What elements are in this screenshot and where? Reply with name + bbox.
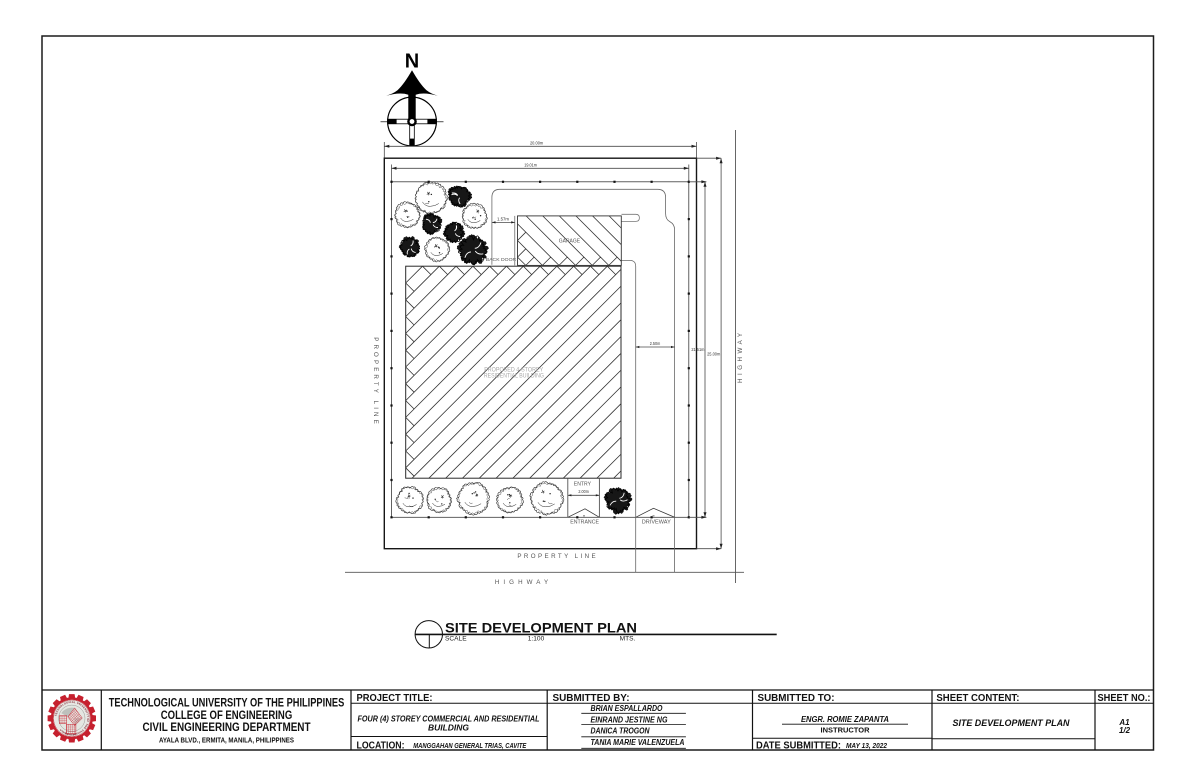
svg-text:TANIA MARIE VALENZUELA: TANIA MARIE VALENZUELA [591, 738, 685, 747]
svg-text:21.51m: 21.51m [691, 347, 704, 353]
svg-text:ENTRY: ENTRY [574, 482, 592, 488]
svg-text:BACK DOOR: BACK DOOR [486, 257, 517, 263]
svg-text:CIVIL ENGINEERING DEPARTMENT: CIVIL ENGINEERING DEPARTMENT [143, 722, 311, 734]
svg-text:INSTRUCTOR: INSTRUCTOR [821, 726, 871, 735]
svg-text:1/2: 1/2 [1119, 726, 1131, 735]
svg-text:SITE DEVELOPMENT PLAN: SITE DEVELOPMENT PLAN [953, 718, 1071, 729]
svg-text:ENTRANCE: ENTRANCE [570, 520, 599, 526]
svg-text:AYALA BLVD., ERMITA, MANILA, P: AYALA BLVD., ERMITA, MANILA, PHILIPPINES [159, 738, 294, 745]
svg-text:19.01m: 19.01m [524, 162, 537, 168]
svg-text:PROPERTY LINE: PROPERTY LINE [517, 553, 595, 560]
svg-text:GARAGE: GARAGE [559, 238, 581, 244]
svg-text:PROPERTY LINE: PROPERTY LINE [372, 337, 379, 424]
svg-text:EINRAND JESTINE NG: EINRAND JESTINE NG [591, 715, 668, 724]
svg-text:BRIAN ESPALLARDO: BRIAN ESPALLARDO [591, 704, 664, 713]
svg-text:1.57m: 1.57m [497, 216, 509, 222]
svg-text:SCALE: SCALE [445, 636, 467, 643]
svg-text:MAY 13, 2022: MAY 13, 2022 [846, 743, 887, 750]
svg-text:2.50m: 2.50m [650, 341, 661, 347]
svg-text:ENGR. ROMIE ZAPANTA: ENGR. ROMIE ZAPANTA [801, 715, 889, 724]
svg-text:SHEET NO.:: SHEET NO.: [1098, 693, 1151, 704]
svg-text:MANGGAHAN GENERAL TRIAS, CAVIT: MANGGAHAN GENERAL TRIAS, CAVITE [413, 743, 526, 750]
svg-text:BUILDING: BUILDING [428, 723, 469, 733]
svg-text:HIGHWAY: HIGHWAY [495, 579, 548, 586]
svg-text:TECHNOLOGICAL UNIVERSITY OF TH: TECHNOLOGICAL UNIVERSITY OF THE PHILIPPI… [109, 698, 345, 710]
svg-text:SUBMITTED TO:: SUBMITTED TO: [758, 693, 835, 704]
svg-text:MTS.: MTS. [620, 636, 636, 643]
svg-text:LOCATION:: LOCATION: [357, 741, 405, 752]
svg-text:2.00m: 2.00m [578, 489, 589, 495]
svg-text:20.00m: 20.00m [530, 141, 543, 147]
svg-text:SUBMITTED BY:: SUBMITTED BY: [553, 693, 630, 704]
svg-text:DATE SUBMITTED:: DATE SUBMITTED: [756, 741, 841, 752]
svg-text:PROJECT TITLE:: PROJECT TITLE: [357, 693, 433, 704]
svg-text:SHEET CONTENT:: SHEET CONTENT: [936, 693, 1019, 704]
svg-text:DRIVEWAY: DRIVEWAY [642, 520, 671, 526]
svg-text:N: N [405, 51, 419, 73]
svg-text:1:100: 1:100 [528, 636, 545, 643]
svg-text:SITE DEVELOPMENT PLAN: SITE DEVELOPMENT PLAN [445, 619, 637, 635]
svg-text:COLLEGE OF ENGINEERING: COLLEGE OF ENGINEERING [161, 710, 293, 722]
svg-text:25.00m: 25.00m [707, 351, 720, 357]
svg-text:DANICA TROGON: DANICA TROGON [591, 726, 650, 735]
svg-text:RESIDENTIAL BUILDING: RESIDENTIAL BUILDING [484, 373, 544, 380]
svg-text:HIGHWAY: HIGHWAY [737, 333, 744, 383]
